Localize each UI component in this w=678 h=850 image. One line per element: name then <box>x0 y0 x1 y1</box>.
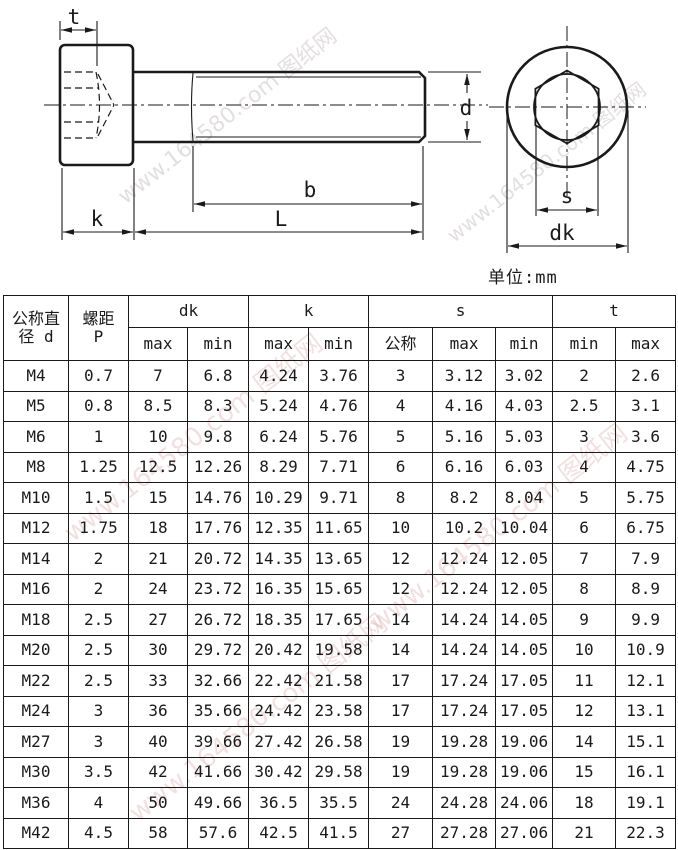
value-cell: 16.1 <box>616 757 676 788</box>
value-cell: 9.9 <box>616 605 676 636</box>
value-cell: 41.5 <box>309 818 369 849</box>
value-cell: 3.5 <box>69 757 129 788</box>
value-cell: 8 <box>369 483 433 514</box>
value-cell: 7.9 <box>616 544 676 575</box>
table-row: M101.51514.7610.299.7188.28.0455.75 <box>4 483 676 514</box>
value-cell: 11 <box>553 666 616 697</box>
value-cell: 1.75 <box>69 513 129 544</box>
value-cell: 22.42 <box>249 666 309 697</box>
dimension-b: b <box>194 178 422 207</box>
value-cell: 36 <box>129 696 188 727</box>
value-cell: 4.24 <box>249 361 309 392</box>
value-cell: 19.58 <box>309 635 369 666</box>
value-cell: 6 <box>553 513 616 544</box>
value-cell: 12 <box>553 696 616 727</box>
value-cell: 3.6 <box>616 422 676 453</box>
L-label: L <box>275 207 288 231</box>
value-cell: 15 <box>129 483 188 514</box>
value-cell: 11.65 <box>309 513 369 544</box>
value-cell: 4.03 <box>496 391 553 422</box>
unit-label: 单位:mm <box>488 263 558 288</box>
value-cell: 8.29 <box>249 452 309 483</box>
spec-table: 公称直 径 d 螺距 P dk k s t max min max <box>3 295 676 849</box>
table-row: M222.53332.6622.4221.581717.2417.051112.… <box>4 666 676 697</box>
value-cell: 41.66 <box>188 757 249 788</box>
header-diameter-line2: 径 d <box>4 328 68 346</box>
table-row: M3645049.6636.535.52424.2824.061819.1 <box>4 788 676 819</box>
value-cell: 17.05 <box>496 666 553 697</box>
value-cell: 24 <box>369 788 433 819</box>
value-cell: 10 <box>553 635 616 666</box>
value-cell: 1.5 <box>69 483 129 514</box>
value-cell: 14 <box>369 605 433 636</box>
value-cell: 29.72 <box>188 635 249 666</box>
value-cell: 6.16 <box>433 452 496 483</box>
value-cell: 12 <box>369 544 433 575</box>
value-cell: 12.35 <box>249 513 309 544</box>
size-cell: M24 <box>4 696 69 727</box>
value-cell: 5 <box>553 483 616 514</box>
s-label: s <box>561 184 574 208</box>
value-cell: 42.5 <box>249 818 309 849</box>
value-cell: 9.71 <box>309 483 369 514</box>
header-group-t: t <box>553 296 676 328</box>
value-cell: 10 <box>129 422 188 453</box>
value-cell: 19.1 <box>616 788 676 819</box>
value-cell: 4 <box>369 391 433 422</box>
screw-shaft <box>133 72 425 142</box>
value-cell: 8 <box>553 574 616 605</box>
value-cell: 15.65 <box>309 574 369 605</box>
value-cell: 12.05 <box>496 574 553 605</box>
header-pitch-line1: 螺距 <box>69 310 128 328</box>
value-cell: 5.24 <box>249 391 309 422</box>
value-cell: 14 <box>369 635 433 666</box>
value-cell: 23.72 <box>188 574 249 605</box>
value-cell: 29.58 <box>309 757 369 788</box>
value-cell: 4 <box>553 452 616 483</box>
value-cell: 2.5 <box>69 635 129 666</box>
header-group-k: k <box>249 296 369 328</box>
value-cell: 26.58 <box>309 727 369 758</box>
value-cell: 12.24 <box>433 574 496 605</box>
table-row: M61109.86.245.7655.165.0333.6 <box>4 422 676 453</box>
value-cell: 2 <box>69 574 129 605</box>
value-cell: 6 <box>369 452 433 483</box>
dimension-t: t <box>60 5 97 66</box>
value-cell: 4.5 <box>69 818 129 849</box>
value-cell: 12 <box>369 574 433 605</box>
size-cell: M6 <box>4 422 69 453</box>
header-pitch: 螺距 P <box>69 296 129 361</box>
value-cell: 3.12 <box>433 361 496 392</box>
value-cell: 4.16 <box>433 391 496 422</box>
value-cell: 14.35 <box>249 544 309 575</box>
value-cell: 14.05 <box>496 605 553 636</box>
value-cell: 27 <box>369 818 433 849</box>
value-cell: 33 <box>129 666 188 697</box>
value-cell: 18.35 <box>249 605 309 636</box>
size-cell: M8 <box>4 452 69 483</box>
value-cell: 5.16 <box>433 422 496 453</box>
value-cell: 17.65 <box>309 605 369 636</box>
table-row: M1422120.7214.3513.651212.2412.0577.9 <box>4 544 676 575</box>
value-cell: 14.05 <box>496 635 553 666</box>
table-row: M81.2512.512.268.297.7166.166.0344.75 <box>4 452 676 483</box>
value-cell: 2 <box>69 544 129 575</box>
technical-drawing: t b k <box>0 0 678 292</box>
value-cell: 5.03 <box>496 422 553 453</box>
table-row: M182.52726.7218.3517.651414.2414.0599.9 <box>4 605 676 636</box>
value-cell: 36.5 <box>249 788 309 819</box>
value-cell: 27.28 <box>433 818 496 849</box>
value-cell: 8.3 <box>188 391 249 422</box>
dimension-d: d <box>428 72 481 142</box>
value-cell: 50 <box>129 788 188 819</box>
value-cell: 17 <box>369 696 433 727</box>
t-label: t <box>68 5 81 29</box>
value-cell: 35.5 <box>309 788 369 819</box>
value-cell: 39.66 <box>188 727 249 758</box>
value-cell: 27.06 <box>496 818 553 849</box>
value-cell: 32.66 <box>188 666 249 697</box>
value-cell: 23.58 <box>309 696 369 727</box>
value-cell: 20.42 <box>249 635 309 666</box>
value-cell: 22.3 <box>616 818 676 849</box>
value-cell: 12.24 <box>433 544 496 575</box>
value-cell: 21 <box>553 818 616 849</box>
value-cell: 26.72 <box>188 605 249 636</box>
value-cell: 21 <box>129 544 188 575</box>
value-cell: 3 <box>369 361 433 392</box>
size-cell: M12 <box>4 513 69 544</box>
value-cell: 12.26 <box>188 452 249 483</box>
size-cell: M22 <box>4 666 69 697</box>
value-cell: 3 <box>69 696 129 727</box>
value-cell: 4.75 <box>616 452 676 483</box>
size-cell: M14 <box>4 544 69 575</box>
header-diameter: 公称直 径 d <box>4 296 69 361</box>
value-cell: 8.5 <box>129 391 188 422</box>
value-cell: 2.6 <box>616 361 676 392</box>
value-cell: 6.75 <box>616 513 676 544</box>
value-cell: 3.1 <box>616 391 676 422</box>
table-row: M40.776.84.243.7633.123.0222.6 <box>4 361 676 392</box>
value-cell: 10 <box>369 513 433 544</box>
value-cell: 12.05 <box>496 544 553 575</box>
value-cell: 17.24 <box>433 696 496 727</box>
value-cell: 27 <box>129 605 188 636</box>
value-cell: 4 <box>69 788 129 819</box>
value-cell: 9 <box>553 605 616 636</box>
value-cell: 24.28 <box>433 788 496 819</box>
size-cell: M16 <box>4 574 69 605</box>
size-cell: M20 <box>4 635 69 666</box>
value-cell: 8.04 <box>496 483 553 514</box>
header-group-s: s <box>369 296 553 328</box>
value-cell: 17.05 <box>496 696 553 727</box>
value-cell: 15 <box>553 757 616 788</box>
size-cell: M30 <box>4 757 69 788</box>
value-cell: 6.24 <box>249 422 309 453</box>
value-cell: 14 <box>553 727 616 758</box>
end-view: s dk <box>489 26 646 253</box>
table-row: M2433635.6624.4223.581717.2417.051213.1 <box>4 696 676 727</box>
value-cell: 6.03 <box>496 452 553 483</box>
value-cell: 17 <box>369 666 433 697</box>
header-s-max: max <box>433 328 496 361</box>
header-dk-min: min <box>188 328 249 361</box>
value-cell: 13.1 <box>616 696 676 727</box>
value-cell: 2 <box>553 361 616 392</box>
value-cell: 8.2 <box>433 483 496 514</box>
value-cell: 19 <box>369 757 433 788</box>
value-cell: 1.25 <box>69 452 129 483</box>
value-cell: 16.35 <box>249 574 309 605</box>
table-row: M121.751817.7612.3511.651010.210.0466.75 <box>4 513 676 544</box>
value-cell: 14.76 <box>188 483 249 514</box>
value-cell: 3 <box>553 422 616 453</box>
value-cell: 49.66 <box>188 788 249 819</box>
header-s-min: min <box>496 328 553 361</box>
value-cell: 58 <box>129 818 188 849</box>
dimension-L: L <box>135 207 422 235</box>
value-cell: 19.06 <box>496 727 553 758</box>
b-label: b <box>304 178 317 202</box>
screw-spec-page: www.164580.com 图纸网 www.164580.com 图纸网 ww… <box>0 0 678 850</box>
size-cell: M10 <box>4 483 69 514</box>
value-cell: 19.28 <box>433 757 496 788</box>
spec-table-body: M40.776.84.243.7633.123.0222.6M50.88.58.… <box>4 361 676 849</box>
header-dk-max: max <box>129 328 188 361</box>
value-cell: 10.29 <box>249 483 309 514</box>
dk-label: dk <box>549 221 575 245</box>
value-cell: 5.75 <box>616 483 676 514</box>
table-row: M2734039.6627.4226.581919.2819.061415.1 <box>4 727 676 758</box>
header-pitch-line2: P <box>69 328 128 346</box>
spec-table-wrap: 公称直 径 d 螺距 P dk k s t max min max <box>3 295 676 849</box>
size-cell: M36 <box>4 788 69 819</box>
value-cell: 9.8 <box>188 422 249 453</box>
table-row: M50.88.58.35.244.7644.164.032.53.1 <box>4 391 676 422</box>
value-cell: 14.24 <box>433 605 496 636</box>
value-cell: 17.76 <box>188 513 249 544</box>
table-row: M202.53029.7220.4219.581414.2414.051010.… <box>4 635 676 666</box>
side-view: t b k <box>44 5 488 240</box>
header-t-min: min <box>553 328 616 361</box>
value-cell: 19 <box>369 727 433 758</box>
value-cell: 2.5 <box>69 666 129 697</box>
value-cell: 8.9 <box>616 574 676 605</box>
value-cell: 5 <box>369 422 433 453</box>
value-cell: 13.65 <box>309 544 369 575</box>
value-cell: 7.71 <box>309 452 369 483</box>
value-cell: 1 <box>69 422 129 453</box>
header-t-max: max <box>616 328 676 361</box>
value-cell: 24 <box>129 574 188 605</box>
table-row: M424.55857.642.541.52727.2827.062122.3 <box>4 818 676 849</box>
value-cell: 3 <box>69 727 129 758</box>
value-cell: 14.24 <box>433 635 496 666</box>
value-cell: 40 <box>129 727 188 758</box>
d-label: d <box>460 96 473 120</box>
value-cell: 24.06 <box>496 788 553 819</box>
size-cell: M5 <box>4 391 69 422</box>
table-row: M1622423.7216.3515.651212.2412.0588.9 <box>4 574 676 605</box>
value-cell: 0.7 <box>69 361 129 392</box>
value-cell: 3.76 <box>309 361 369 392</box>
value-cell: 10.9 <box>616 635 676 666</box>
header-k-min: min <box>309 328 369 361</box>
size-cell: M4 <box>4 361 69 392</box>
size-cell: M42 <box>4 818 69 849</box>
value-cell: 0.8 <box>69 391 129 422</box>
value-cell: 30.42 <box>249 757 309 788</box>
value-cell: 7 <box>129 361 188 392</box>
value-cell: 17.24 <box>433 666 496 697</box>
value-cell: 6.8 <box>188 361 249 392</box>
value-cell: 42 <box>129 757 188 788</box>
header-k-max: max <box>249 328 309 361</box>
value-cell: 35.66 <box>188 696 249 727</box>
value-cell: 30 <box>129 635 188 666</box>
value-cell: 24.42 <box>249 696 309 727</box>
value-cell: 19.06 <box>496 757 553 788</box>
value-cell: 18 <box>553 788 616 819</box>
value-cell: 3.02 <box>496 361 553 392</box>
value-cell: 10.2 <box>433 513 496 544</box>
value-cell: 27.42 <box>249 727 309 758</box>
header-s-nominal: 公称 <box>369 328 433 361</box>
thread-runout <box>192 73 194 141</box>
value-cell: 2.5 <box>69 605 129 636</box>
value-cell: 7 <box>553 544 616 575</box>
header-diameter-line1: 公称直 <box>4 310 68 328</box>
value-cell: 20.72 <box>188 544 249 575</box>
size-cell: M27 <box>4 727 69 758</box>
value-cell: 19.28 <box>433 727 496 758</box>
value-cell: 15.1 <box>616 727 676 758</box>
table-row: M303.54241.6630.4229.581919.2819.061516.… <box>4 757 676 788</box>
value-cell: 2.5 <box>553 391 616 422</box>
value-cell: 57.6 <box>188 818 249 849</box>
header-group-dk: dk <box>129 296 249 328</box>
size-cell: M18 <box>4 605 69 636</box>
value-cell: 18 <box>129 513 188 544</box>
value-cell: 4.76 <box>309 391 369 422</box>
value-cell: 10.04 <box>496 513 553 544</box>
value-cell: 21.58 <box>309 666 369 697</box>
dimension-k: k <box>63 207 133 235</box>
value-cell: 12.5 <box>129 452 188 483</box>
value-cell: 5.76 <box>309 422 369 453</box>
value-cell: 12.1 <box>616 666 676 697</box>
k-label: k <box>91 207 104 231</box>
